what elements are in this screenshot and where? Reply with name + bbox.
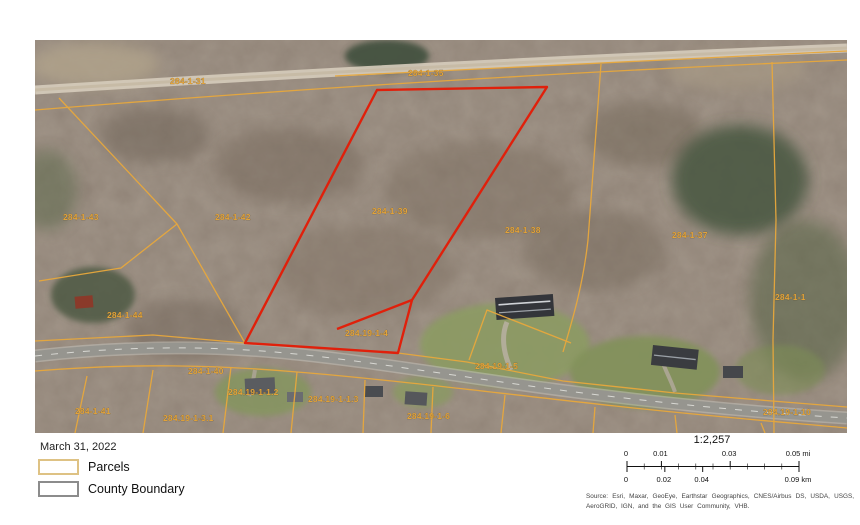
parcel-label: 284.19-1-1.3 [308,394,359,404]
map-export-page: 284-1-31284-1-35284-1-43284-1-42284-1-39… [0,0,860,525]
parcel-label: 284-1-37 [672,230,708,240]
parcel-label: 284.19-1-1.2 [228,387,279,397]
parcel-label: 284-1-1 [775,292,806,302]
map-date: March 31, 2022 [40,441,185,453]
scale-tick-label: 0.04 [694,475,709,484]
parcel-label: 284-1-43 [63,212,99,222]
parcel-label: 284-1-39 [372,206,408,216]
scale-tick-label: 0.02 [657,475,672,484]
parcel-label: 284-1-44 [107,310,143,320]
scale-tick-label: 0.03 [722,449,737,458]
parcel-label: 284.19-1-6 [407,411,450,421]
parcel-label: 284-1-42 [215,212,251,222]
legend-item-county-boundary: County Boundary [38,481,185,497]
parcel-label: 284-1-41 [75,406,111,416]
parcel-label: 284-1-38 [505,225,541,235]
legend-label: Parcels [88,460,130,474]
aerial-imagery: 284-1-31284-1-35284-1-43284-1-42284-1-39… [35,40,847,433]
miles-tick-labels: 00.010.030.05 mi [626,449,798,459]
scale-bar-graphic [626,460,800,473]
legend-label: County Boundary [88,482,185,496]
scale-tick-label: 0 [624,449,628,458]
scale-tick-label: 0.05 mi [786,449,811,458]
parcel-label: 284.19-1-5 [475,361,518,371]
legend-item-parcels: Parcels [38,459,185,475]
parcel-label: 284-1-40 [188,366,224,376]
legend: March 31, 2022 Parcels County Boundary [38,441,185,497]
parcel-label: 284-1-31 [170,76,206,86]
scale-tick-label: 0.01 [653,449,668,458]
attribution-line1: Source: Esri, Maxar, GeoEye, Earthstar G… [586,493,806,500]
scale-ratio: 1:2,257 [626,434,798,446]
scale-tick-label: 0.09 km [785,475,812,484]
attribution-text: Source: Esri, Maxar, GeoEye, Earthstar G… [586,492,854,512]
map-canvas[interactable]: 284-1-31284-1-35284-1-43284-1-42284-1-39… [35,40,847,433]
county-boundary-swatch [38,481,79,497]
parcels-swatch [38,459,79,475]
parcel-label: 284.19-1-10 [763,407,811,417]
parcel-label: 284.19-1-3.1 [163,413,214,423]
scale-bar: 1:2,257 00.010.030.05 mi 00.020.040.09 k… [586,434,854,524]
parcel-label: 284-1-35 [408,68,444,78]
scale-tick-label: 0 [624,475,628,484]
parcel-label: 284.19-1-4 [345,328,388,338]
km-tick-labels: 00.020.040.09 km [626,475,798,485]
